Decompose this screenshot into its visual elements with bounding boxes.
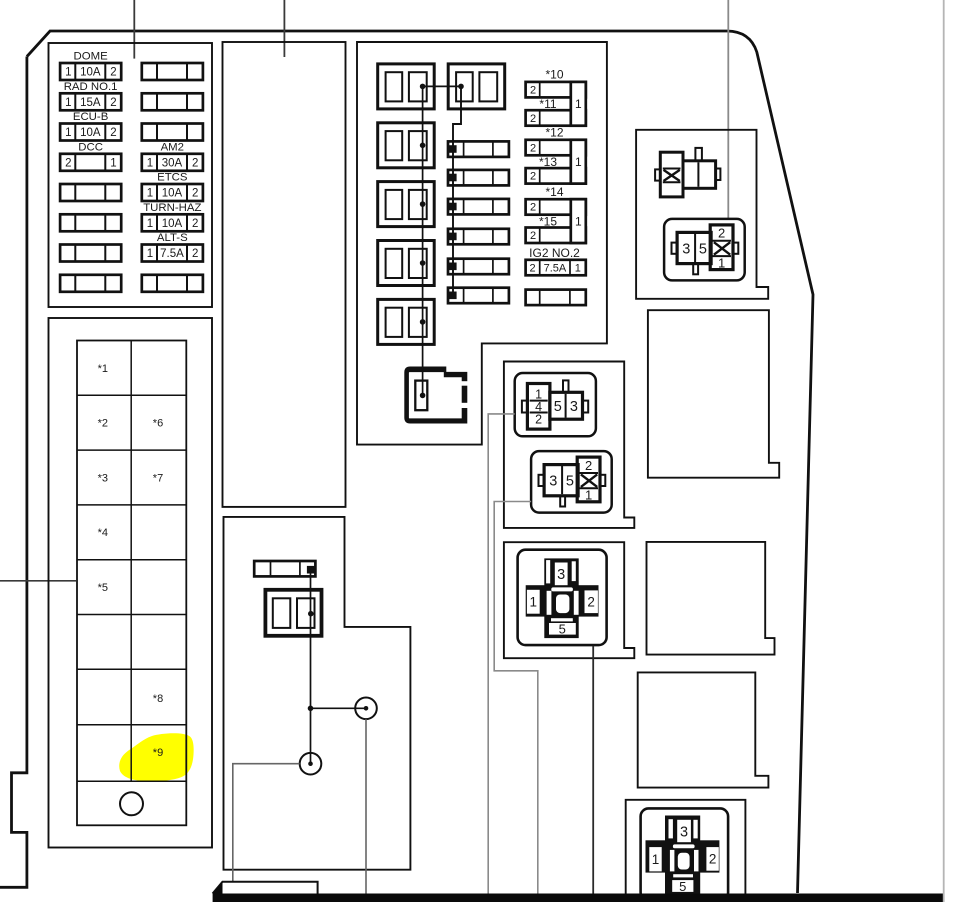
svg-text:*3: *3 [98,473,108,485]
svg-text:1: 1 [585,488,592,503]
svg-text:2: 2 [192,188,198,200]
svg-text:1: 1 [147,218,153,230]
svg-text:AM2: AM2 [161,142,184,154]
svg-text:1: 1 [575,155,582,169]
svg-text:3: 3 [549,474,557,490]
svg-text:*11: *11 [539,97,556,111]
svg-text:DOME: DOME [74,51,109,63]
svg-text:3: 3 [680,824,688,840]
svg-text:1: 1 [529,595,537,610]
svg-text:DCC: DCC [78,142,103,154]
svg-text:ETCS: ETCS [157,172,188,184]
svg-text:ECU-B: ECU-B [73,111,108,123]
svg-text:1: 1 [65,97,71,109]
svg-text:IG2 NO.2: IG2 NO.2 [529,246,580,260]
svg-text:ALT-S: ALT-S [157,232,188,244]
svg-text:TURN-HAZ: TURN-HAZ [143,202,201,214]
svg-text:2: 2 [718,226,725,241]
svg-text:1: 1 [652,852,660,867]
svg-text:*2: *2 [98,418,108,430]
svg-text:5: 5 [566,474,574,490]
svg-text:2: 2 [530,230,536,242]
svg-text:2: 2 [530,262,536,274]
svg-text:15A: 15A [80,97,101,109]
svg-text:1: 1 [110,157,116,169]
svg-text:*12: *12 [545,125,563,139]
svg-text:*1: *1 [98,363,108,375]
svg-text:*8: *8 [153,693,163,705]
svg-text:*5: *5 [98,582,108,594]
svg-text:*4: *4 [98,527,108,539]
svg-text:3: 3 [682,241,690,257]
svg-text:1: 1 [147,188,153,200]
svg-text:2: 2 [530,85,536,97]
svg-text:1: 1 [65,127,71,139]
svg-text:3: 3 [557,567,565,583]
svg-text:3: 3 [570,399,578,415]
svg-text:1: 1 [718,255,725,270]
svg-text:10A: 10A [80,127,101,139]
svg-text:RAD NO.1: RAD NO.1 [64,81,118,93]
svg-text:2: 2 [110,127,116,139]
svg-text:1: 1 [147,248,153,260]
svg-text:2: 2 [110,67,116,79]
svg-text:2: 2 [110,97,116,109]
svg-text:2: 2 [535,413,542,427]
svg-text:5: 5 [554,399,562,415]
svg-text:2: 2 [587,595,595,610]
svg-text:2: 2 [585,458,592,473]
svg-text:*14: *14 [545,185,563,199]
svg-text:1: 1 [575,214,582,228]
svg-text:7.5A: 7.5A [160,248,184,260]
svg-text:1: 1 [65,67,71,79]
svg-text:30A: 30A [162,157,183,169]
svg-text:2: 2 [192,157,198,169]
svg-text:*10: *10 [545,68,563,82]
svg-text:10A: 10A [162,188,183,200]
svg-text:2: 2 [65,157,71,169]
svg-text:10A: 10A [162,218,183,230]
svg-text:*6: *6 [153,418,163,430]
svg-text:2: 2 [192,248,198,260]
svg-text:*15: *15 [539,214,557,228]
svg-text:*13: *13 [539,155,557,169]
svg-text:7.5A: 7.5A [544,262,567,274]
svg-text:*9: *9 [153,747,163,759]
svg-text:*7: *7 [153,473,163,485]
svg-text:2: 2 [530,202,536,214]
svg-text:5: 5 [699,241,707,257]
svg-text:2: 2 [709,852,717,867]
svg-text:1: 1 [575,262,581,274]
svg-text:10A: 10A [80,67,101,79]
svg-text:5: 5 [679,879,686,894]
svg-text:2: 2 [192,218,198,230]
svg-text:1: 1 [147,157,153,169]
svg-text:5: 5 [559,622,566,637]
svg-text:1: 1 [575,97,582,111]
svg-text:2: 2 [530,171,536,183]
svg-text:2: 2 [530,113,536,125]
svg-text:2: 2 [530,142,536,154]
